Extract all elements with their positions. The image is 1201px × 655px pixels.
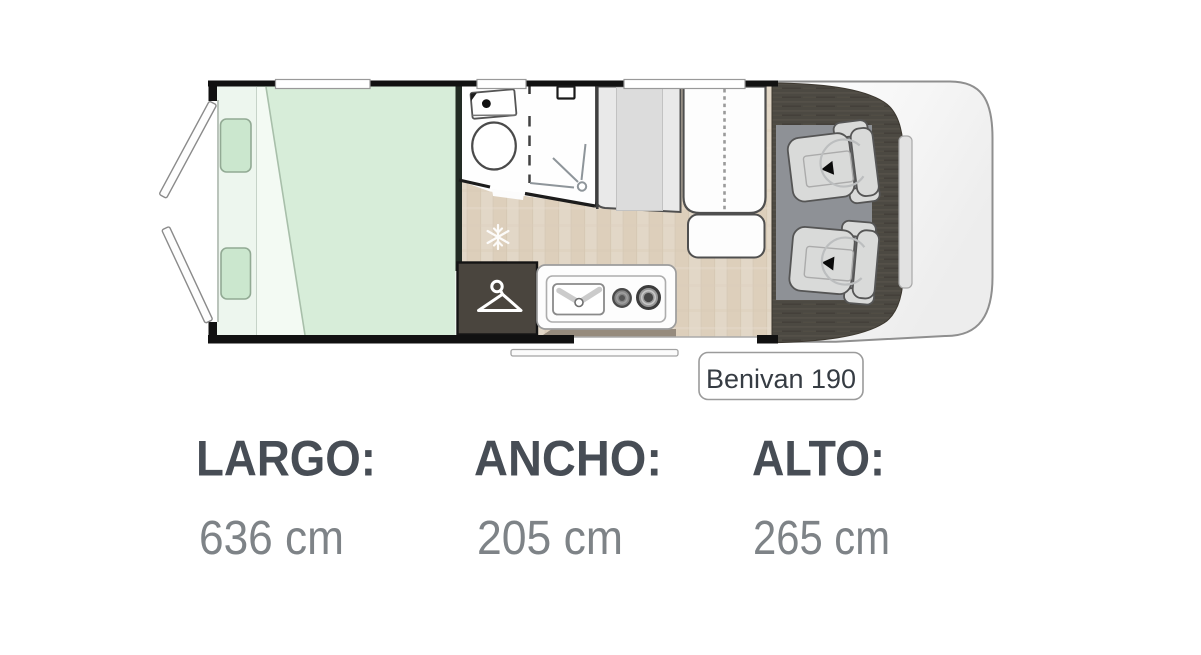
svg-text:ALTO:: ALTO: [752, 431, 885, 487]
svg-text:LARGO:: LARGO: [196, 431, 376, 487]
svg-text:265 cm: 265 cm [753, 512, 890, 565]
svg-text:205 cm: 205 cm [477, 512, 623, 565]
svg-text:Benivan 190: Benivan 190 [706, 364, 856, 394]
svg-text:ANCHO:: ANCHO: [474, 431, 662, 487]
svg-text:636 cm: 636 cm [199, 512, 344, 565]
